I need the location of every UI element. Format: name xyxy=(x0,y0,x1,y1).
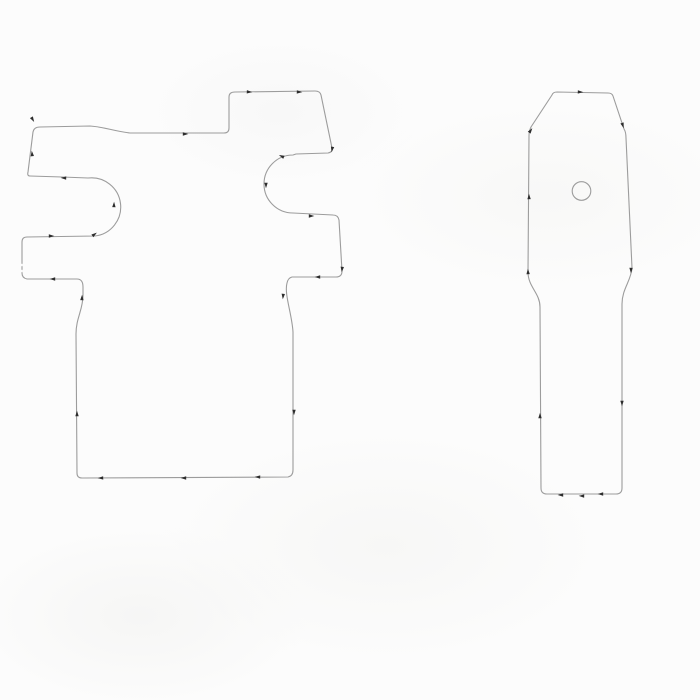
template-drawing-canvas xyxy=(0,0,700,700)
path-node-mark xyxy=(181,476,187,479)
path-node-mark xyxy=(247,90,253,94)
path-node-mark xyxy=(620,401,623,407)
path-node-mark xyxy=(50,277,56,280)
path-node-mark xyxy=(98,476,104,480)
path-node-mark xyxy=(112,202,116,208)
path-node-mark xyxy=(255,475,261,479)
left-template-outline xyxy=(22,91,342,478)
path-node-mark xyxy=(598,492,604,495)
path-node-mark xyxy=(49,234,55,237)
path-node-mark xyxy=(578,90,584,94)
path-node-mark xyxy=(281,294,285,300)
scan-line-gap xyxy=(20,270,23,272)
path-node-mark xyxy=(538,413,541,419)
right-template-hole xyxy=(572,182,591,201)
path-node-mark xyxy=(620,122,625,128)
path-node-mark xyxy=(629,268,632,274)
path-node-mark xyxy=(30,116,36,122)
path-node-mark xyxy=(264,183,267,189)
path-node-mark xyxy=(579,494,585,498)
right-template-outline xyxy=(528,92,632,494)
path-node-mark xyxy=(526,269,530,275)
path-node-mark xyxy=(340,267,344,273)
scanned-drawing-page xyxy=(0,0,700,700)
path-node-mark xyxy=(527,194,530,200)
path-node-mark xyxy=(315,275,321,278)
path-node-mark xyxy=(309,214,315,217)
path-node-mark xyxy=(75,411,78,417)
scan-line-gap xyxy=(20,264,23,266)
